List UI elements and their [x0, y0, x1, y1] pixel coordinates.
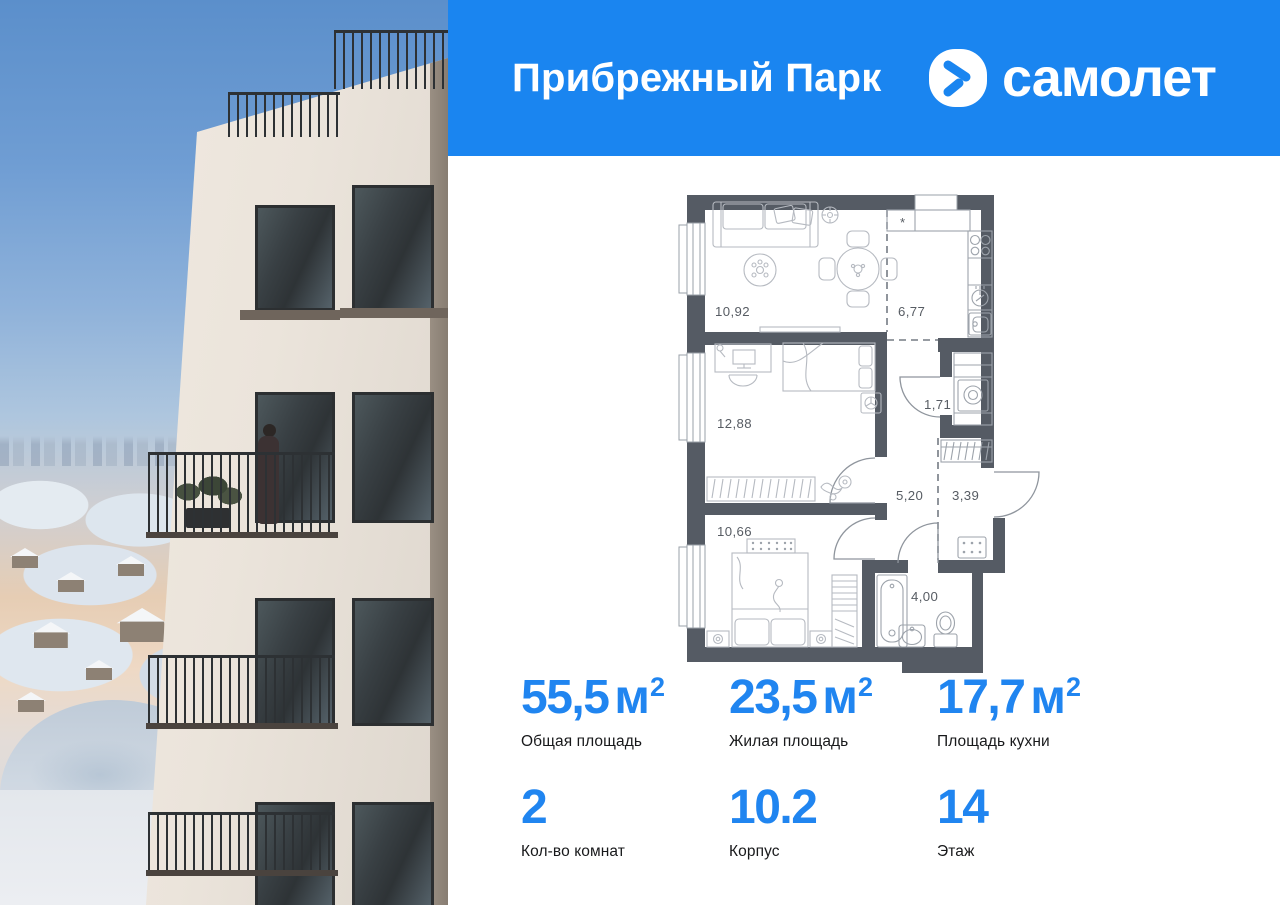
stat-label: Общая площадь	[521, 733, 731, 751]
stat-value: 55,5м2	[521, 674, 731, 722]
building-window	[255, 205, 335, 311]
balcony-railing	[148, 812, 335, 875]
card-header: Прибрежный Парк самолет	[448, 0, 1280, 156]
building-window	[352, 598, 434, 726]
room-label-kitchen: 6,77	[898, 304, 925, 319]
balcony-railing	[148, 655, 335, 728]
stat-label: Этаж	[937, 843, 1147, 861]
project-title: Прибрежный Парк	[512, 56, 881, 101]
balcony-railing	[148, 452, 335, 537]
building-window	[352, 392, 434, 523]
walls	[687, 195, 1005, 673]
roof-railing	[334, 30, 448, 89]
listing-card[interactable]: { "header": { "project_name": "Прибрежны…	[0, 0, 1280, 905]
zone-dashes	[887, 210, 938, 560]
floor-plan: * 10,92 6,77 12,88 1,71 5,20 3,39 10,66 …	[675, 185, 1065, 675]
stat-total-area: 55,5м2 Общая площадь	[521, 674, 731, 751]
windows	[679, 223, 705, 628]
stat-value: 23,5м2	[729, 674, 939, 722]
stat-label: Площадь кухни	[937, 733, 1147, 751]
door-bedroom-1	[830, 458, 875, 503]
facade-band	[240, 310, 340, 320]
stat-rooms: 2 Кол-во комнат	[521, 784, 731, 861]
vent-symbol: *	[900, 215, 906, 230]
room-label-living: 10,92	[715, 304, 750, 319]
stat-floor: 14 Этаж	[937, 784, 1147, 861]
room-label-bathroom: 4,00	[911, 589, 938, 604]
samolet-logo-icon	[929, 49, 987, 107]
door-entrance	[994, 472, 1039, 517]
stat-building: 10.2 Корпус	[729, 784, 939, 861]
room-label-bedroom2: 10,66	[717, 524, 752, 539]
brand-logo: самолет	[929, 49, 1216, 107]
door-bathroom	[898, 523, 938, 563]
door-bedroom-2	[834, 518, 875, 559]
stat-value: 10.2	[729, 784, 939, 832]
stat-label: Корпус	[729, 843, 939, 861]
vent-shaft	[915, 195, 957, 210]
facade-band	[340, 308, 448, 318]
stat-label: Жилая площадь	[729, 733, 939, 751]
stat-value: 2	[521, 784, 731, 832]
hero-photo	[0, 0, 448, 905]
building-window	[352, 802, 434, 905]
room-label-bedroom1: 12,88	[717, 416, 752, 431]
balcony-slab	[146, 723, 338, 729]
stat-value: 17,7м2	[937, 674, 1147, 722]
stat-value: 14	[937, 784, 1147, 832]
room-label-entry: 3,39	[952, 488, 979, 503]
dot-details	[752, 542, 982, 554]
balcony-slab	[146, 870, 338, 876]
stat-kitchen-area: 17,7м2 Площадь кухни	[937, 674, 1147, 751]
stat-label: Кол-во комнат	[521, 843, 731, 861]
building-window	[352, 185, 434, 311]
stat-living-area: 23,5м2 Жилая площадь	[729, 674, 939, 751]
balcony-slab	[146, 532, 338, 538]
room-label-laundry: 1,71	[924, 397, 951, 412]
roof-railing	[228, 92, 340, 137]
room-label-hallway: 5,20	[896, 488, 923, 503]
brand-name: самолет	[1002, 51, 1216, 105]
